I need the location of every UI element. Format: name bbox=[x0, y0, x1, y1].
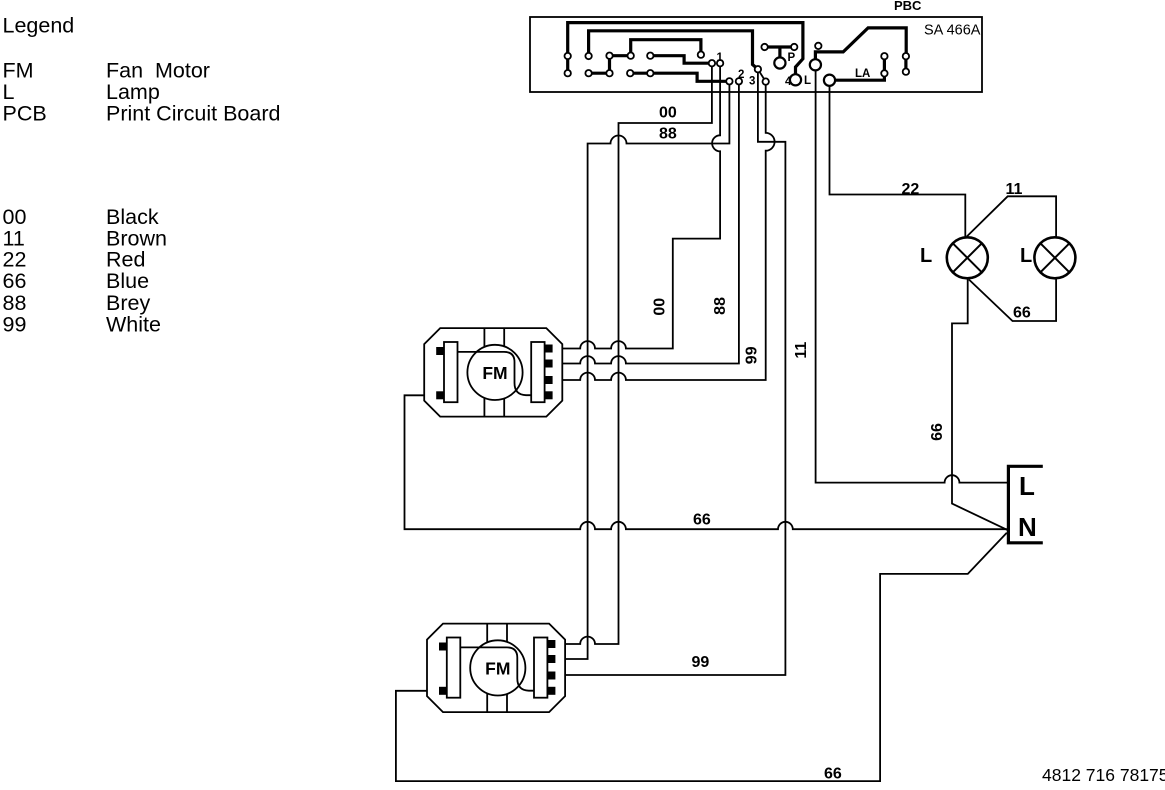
svg-text:PBC: PBC bbox=[894, 0, 922, 13]
svg-text:Brey: Brey bbox=[106, 291, 150, 315]
svg-text:66: 66 bbox=[929, 423, 946, 441]
svg-text:FM: FM bbox=[482, 363, 507, 383]
svg-text:11: 11 bbox=[793, 342, 810, 359]
svg-text:3: 3 bbox=[749, 76, 755, 88]
svg-text:66: 66 bbox=[824, 766, 842, 783]
svg-text:00: 00 bbox=[3, 205, 27, 229]
svg-text:99: 99 bbox=[3, 312, 27, 336]
svg-text:11: 11 bbox=[3, 226, 25, 250]
svg-text:Print Circuit Board: Print Circuit Board bbox=[106, 101, 280, 125]
svg-text:PCB: PCB bbox=[3, 101, 47, 125]
svg-text:4: 4 bbox=[785, 76, 792, 88]
svg-text:22: 22 bbox=[902, 181, 920, 198]
svg-text:LA: LA bbox=[855, 68, 870, 80]
svg-text:Black: Black bbox=[106, 205, 159, 229]
svg-text:Blue: Blue bbox=[106, 269, 149, 293]
svg-text:P: P bbox=[788, 52, 796, 64]
svg-text:Red: Red bbox=[106, 248, 145, 272]
svg-text:2: 2 bbox=[738, 69, 744, 81]
svg-text:L: L bbox=[1019, 471, 1035, 501]
svg-text:Lamp: Lamp bbox=[106, 80, 160, 104]
svg-text:99: 99 bbox=[743, 346, 760, 364]
svg-text:88: 88 bbox=[659, 126, 677, 143]
svg-text:11: 11 bbox=[1006, 181, 1023, 198]
svg-text:22: 22 bbox=[3, 248, 27, 272]
svg-text:L: L bbox=[920, 245, 932, 267]
svg-text:99: 99 bbox=[692, 654, 710, 671]
svg-text:1: 1 bbox=[717, 52, 724, 64]
svg-text:00: 00 bbox=[651, 298, 668, 316]
svg-text:FM: FM bbox=[3, 58, 34, 82]
svg-text:Fan Motor: Fan Motor bbox=[106, 58, 210, 82]
svg-text:66: 66 bbox=[1013, 305, 1031, 322]
svg-text:L: L bbox=[804, 75, 811, 87]
svg-text:FM: FM bbox=[485, 658, 510, 678]
svg-text:L: L bbox=[1020, 245, 1032, 267]
svg-text:L: L bbox=[3, 80, 15, 104]
svg-text:00: 00 bbox=[659, 105, 677, 122]
svg-text:White: White bbox=[106, 312, 161, 336]
svg-text:N: N bbox=[1018, 512, 1037, 542]
svg-text:88: 88 bbox=[712, 297, 729, 315]
svg-text:Brown: Brown bbox=[106, 226, 167, 250]
svg-text:66: 66 bbox=[693, 512, 711, 529]
svg-text:SA 466A: SA 466A bbox=[924, 23, 981, 39]
svg-text:88: 88 bbox=[3, 291, 27, 315]
svg-text:66: 66 bbox=[3, 269, 27, 293]
svg-text:Legend: Legend bbox=[3, 14, 75, 38]
svg-text:4812 716 78175: 4812 716 78175 bbox=[1042, 765, 1165, 785]
